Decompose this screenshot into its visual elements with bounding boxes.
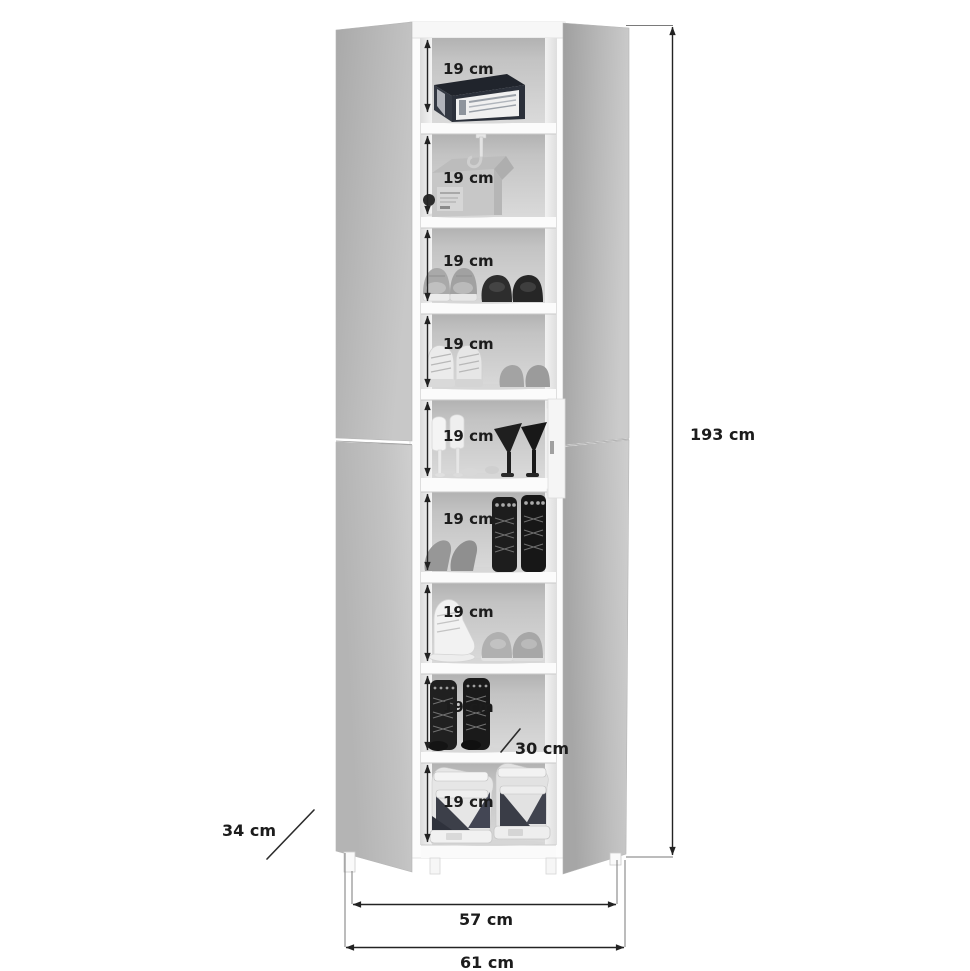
shelf-dim-label-9: 19 cm [443, 793, 494, 811]
shelf-depth-dim-label: 30 cm [515, 739, 569, 758]
height-dimension: 193 cm [626, 26, 755, 858]
shelf-dim-label-4: 19 cm [443, 335, 494, 353]
front-width-dimension: 57 cm [352, 860, 617, 929]
total-width-dim-label: 61 cm [460, 953, 514, 971]
door-depth-dimension: 34 cm [222, 810, 314, 859]
right-mirror-door [563, 23, 629, 874]
door-damper-knob [423, 194, 435, 206]
door-depth-dim-label: 34 cm [222, 821, 276, 840]
cabinet-top-board [410, 22, 565, 38]
left-door-lower-panel [336, 442, 412, 872]
shelf-dim-label-2: 19 cm [443, 169, 494, 187]
open-flap-front [547, 399, 565, 498]
shelf-dim-label-5: 19 cm [443, 427, 494, 445]
left-mirror-door [336, 22, 412, 872]
shelf-dimension-labels: 19 cm 19 cm 19 cm 19 cm 19 cm 19 cm 19 c… [443, 60, 494, 811]
shelf-dim-label-1: 19 cm [443, 60, 494, 78]
shelf-dim-label-7: 19 cm [443, 603, 494, 621]
shelf-dim-label-8: 19 cm [443, 698, 494, 716]
cabinet-bottom-board [421, 845, 556, 858]
left-door-upper-panel [336, 22, 412, 441]
right-door-upper-panel [563, 23, 629, 445]
product-dimension-diagram: 19 cm 19 cm 19 cm 19 cm 19 cm 19 cm 19 c… [0, 0, 970, 971]
front-width-dim-label: 57 cm [459, 910, 513, 929]
shoe-cabinet-diagram: 19 cm 19 cm 19 cm 19 cm 19 cm 19 cm 19 c… [0, 0, 970, 971]
height-dim-label: 193 cm [690, 425, 755, 444]
shelf-dim-label-3: 19 cm [443, 252, 494, 270]
shelf-dim-label-6: 19 cm [443, 510, 494, 528]
right-door-seam-lower-panel [563, 440, 629, 874]
flap-handle [550, 441, 554, 454]
